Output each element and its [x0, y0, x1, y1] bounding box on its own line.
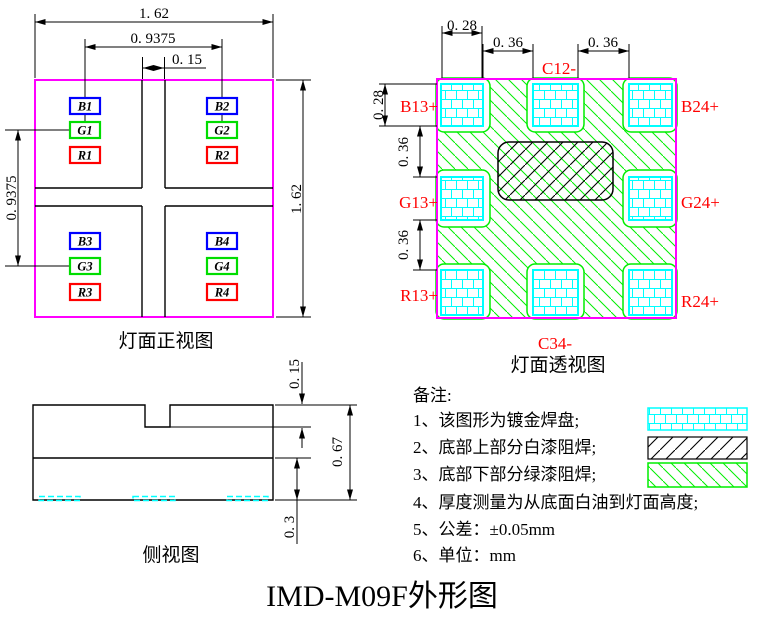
outline-drawing: B1 G1 R1 B2 G2 R2 B3 G3 R3 B4 G4 R4 1. 6… — [0, 0, 766, 617]
dim-text-pad-height: 0. 28 — [371, 90, 387, 120]
pad-label-r2: R2 — [214, 149, 230, 163]
dim-pad-gap-v2 — [413, 220, 437, 270]
pad-label-g3: G3 — [77, 260, 92, 274]
pad-label-g4: G4 — [214, 260, 229, 274]
notes-heading: 备注: — [413, 386, 452, 405]
drawing-page: B1 G1 R1 B2 G2 R2 B3 G3 R3 B4 G4 R4 1. 6… — [0, 0, 766, 617]
note-item-6: 6、单位：mm — [413, 546, 516, 565]
note-item-4: 4、厚度测量为从底面白油到灯面高度; — [413, 493, 698, 512]
terminal-c12: C12- — [542, 59, 576, 78]
perspective-view: 0. 28 0. 36 0. 36 0. 28 0. 36 0. 36 C12-… — [371, 18, 720, 376]
perspective-view-caption: 灯面透视图 — [510, 354, 605, 376]
terminal-r13: R13+ — [400, 286, 438, 305]
side-view-caption: 侧视图 — [142, 544, 199, 566]
pad-label-b3: B3 — [77, 235, 93, 249]
side-extension-lines — [170, 405, 357, 500]
pad-label-b4: B4 — [214, 235, 230, 249]
front-view: B1 G1 R1 B2 G2 R2 B3 G3 R3 B4 G4 R4 1. 6… — [4, 6, 311, 352]
note-item-5: 5、公差：±0.05mm — [413, 520, 555, 539]
dim-text-bottom-layer: 0. 3 — [282, 516, 298, 539]
green-mask-swatch — [648, 463, 747, 487]
pad-label-g1: G1 — [77, 124, 92, 138]
terminal-b13: B13+ — [400, 97, 438, 116]
terminal-g24: G24+ — [681, 193, 720, 212]
side-body-outline — [33, 405, 273, 500]
dim-text-overall-width: 1. 62 — [139, 6, 169, 22]
dim-text-center-gap: 0. 15 — [172, 52, 202, 68]
pad-label-g2: G2 — [214, 124, 229, 138]
dim-text-pad-width: 0. 28 — [447, 18, 477, 34]
notes-block: 备注: 1、该图形为镀金焊盘; 2、底部上部分白漆阻焊; 3、底部下部分绿漆阻焊… — [413, 386, 747, 565]
note-item-1: 1、该图形为镀金焊盘; — [413, 411, 579, 430]
front-package-outline — [35, 80, 273, 317]
pad-label-r3: R3 — [77, 286, 93, 300]
pad-label-r4: R4 — [214, 286, 230, 300]
note-item-3: 3、底部下部分绿漆阻焊; — [413, 465, 596, 484]
gold-pad-swatch — [648, 408, 747, 430]
dim-text-pad-gap-h2: 0. 36 — [588, 35, 619, 51]
dim-text-notch-depth: 0. 15 — [287, 359, 303, 389]
dim-text-pad-gap-v2: 0. 36 — [396, 230, 412, 261]
terminal-b24: B24+ — [681, 97, 719, 116]
dim-text-total-height: 0. 67 — [330, 437, 346, 468]
terminal-g13: G13+ — [399, 193, 438, 212]
terminal-c34: C34- — [538, 334, 572, 353]
front-view-caption: 灯面正视图 — [118, 330, 213, 352]
dim-text-pad-pitch-h: 0. 9375 — [131, 31, 176, 47]
terminal-r24: R24+ — [681, 292, 719, 311]
white-mask-swatch — [648, 437, 747, 459]
side-view: 0. 15 0. 67 0. 3 侧视图 — [33, 359, 357, 566]
note-item-2: 2、底部上部分白漆阻焊; — [413, 438, 596, 457]
dim-text-pad-gap-v1: 0. 36 — [396, 137, 412, 168]
white-solder-mask-region — [498, 142, 613, 200]
pad-label-b1: B1 — [77, 100, 93, 114]
dim-text-pad-gap-h1: 0. 36 — [493, 35, 524, 51]
drawing-title: IMD-M09F外形图 — [266, 580, 498, 613]
pad-label-b2: B2 — [214, 100, 230, 114]
dim-pad-gap-v1 — [413, 126, 437, 177]
pad-label-r1: R1 — [77, 149, 93, 163]
dim-text-pad-pitch-v: 0. 9375 — [4, 176, 20, 221]
dim-text-overall-height: 1. 62 — [289, 184, 305, 214]
